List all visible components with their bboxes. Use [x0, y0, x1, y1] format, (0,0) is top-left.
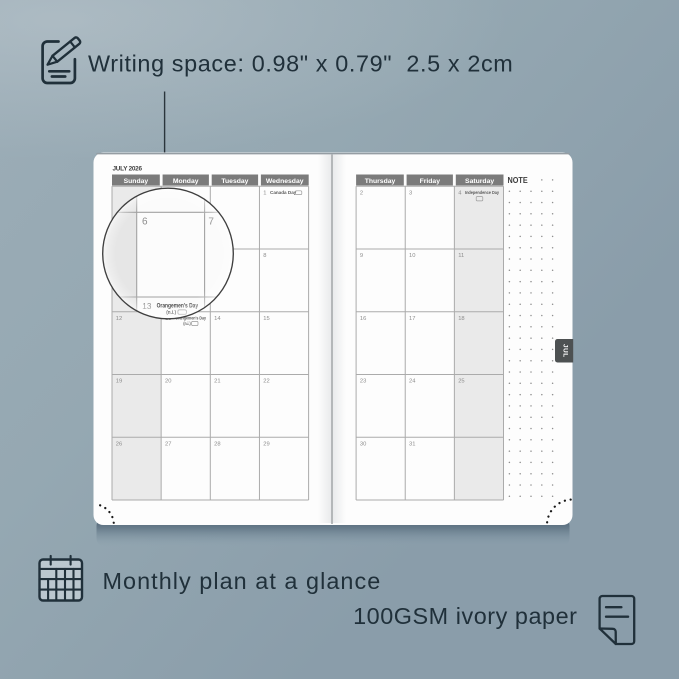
svg-text:20: 20: [165, 379, 171, 385]
svg-text:1: 1: [263, 190, 266, 196]
svg-text:Friday: Friday: [420, 178, 441, 185]
svg-text:22: 22: [263, 379, 269, 385]
svg-text:Monday: Monday: [173, 178, 199, 185]
svg-text:Wednesday: Wednesday: [266, 178, 304, 185]
svg-text:NOTE: NOTE: [508, 175, 529, 185]
svg-text:23: 23: [360, 379, 366, 385]
svg-text:12: 12: [116, 316, 122, 322]
svg-text:29: 29: [263, 441, 269, 447]
svg-text:17: 17: [409, 316, 415, 322]
svg-text:21: 21: [214, 379, 220, 385]
svg-text:31: 31: [409, 441, 415, 447]
svg-text:Canada Day: Canada Day: [270, 190, 297, 195]
svg-text:3: 3: [409, 190, 412, 196]
svg-text:Monthly plan at a glance: Monthly plan at a glance: [103, 568, 382, 594]
svg-text:19: 19: [116, 379, 122, 385]
svg-text:16: 16: [360, 316, 366, 322]
svg-text:Independence Day: Independence Day: [465, 190, 499, 195]
svg-text:JUL: JUL: [562, 344, 569, 358]
svg-text:10: 10: [409, 253, 415, 259]
svg-text:2: 2: [360, 190, 363, 196]
svg-text:Writing space: 0.98" x 0.79": Writing space: 0.98" x 0.79" 2.5 x 2cm: [88, 51, 513, 78]
svg-text:30: 30: [360, 441, 366, 447]
svg-text:Tuesday: Tuesday: [221, 178, 248, 185]
svg-text:25: 25: [458, 379, 464, 385]
svg-text:24: 24: [409, 379, 416, 385]
svg-text:JULY 2026: JULY 2026: [113, 166, 143, 173]
svg-text:28: 28: [214, 441, 220, 447]
svg-text:14: 14: [214, 316, 221, 322]
svg-text:100GSM ivory paper: 100GSM ivory paper: [353, 603, 577, 629]
svg-text:15: 15: [263, 316, 269, 322]
svg-text:27: 27: [165, 441, 171, 447]
svg-text:Saturday: Saturday: [465, 178, 494, 185]
svg-text:(n.i.): (n.i.): [183, 321, 191, 326]
svg-text:26: 26: [116, 441, 122, 447]
svg-text:Sunday: Sunday: [124, 178, 149, 185]
svg-text:9: 9: [360, 253, 363, 259]
svg-text:11: 11: [458, 253, 464, 259]
svg-text:Thursday: Thursday: [365, 178, 396, 185]
svg-text:18: 18: [458, 316, 464, 322]
svg-text:8: 8: [263, 253, 266, 259]
